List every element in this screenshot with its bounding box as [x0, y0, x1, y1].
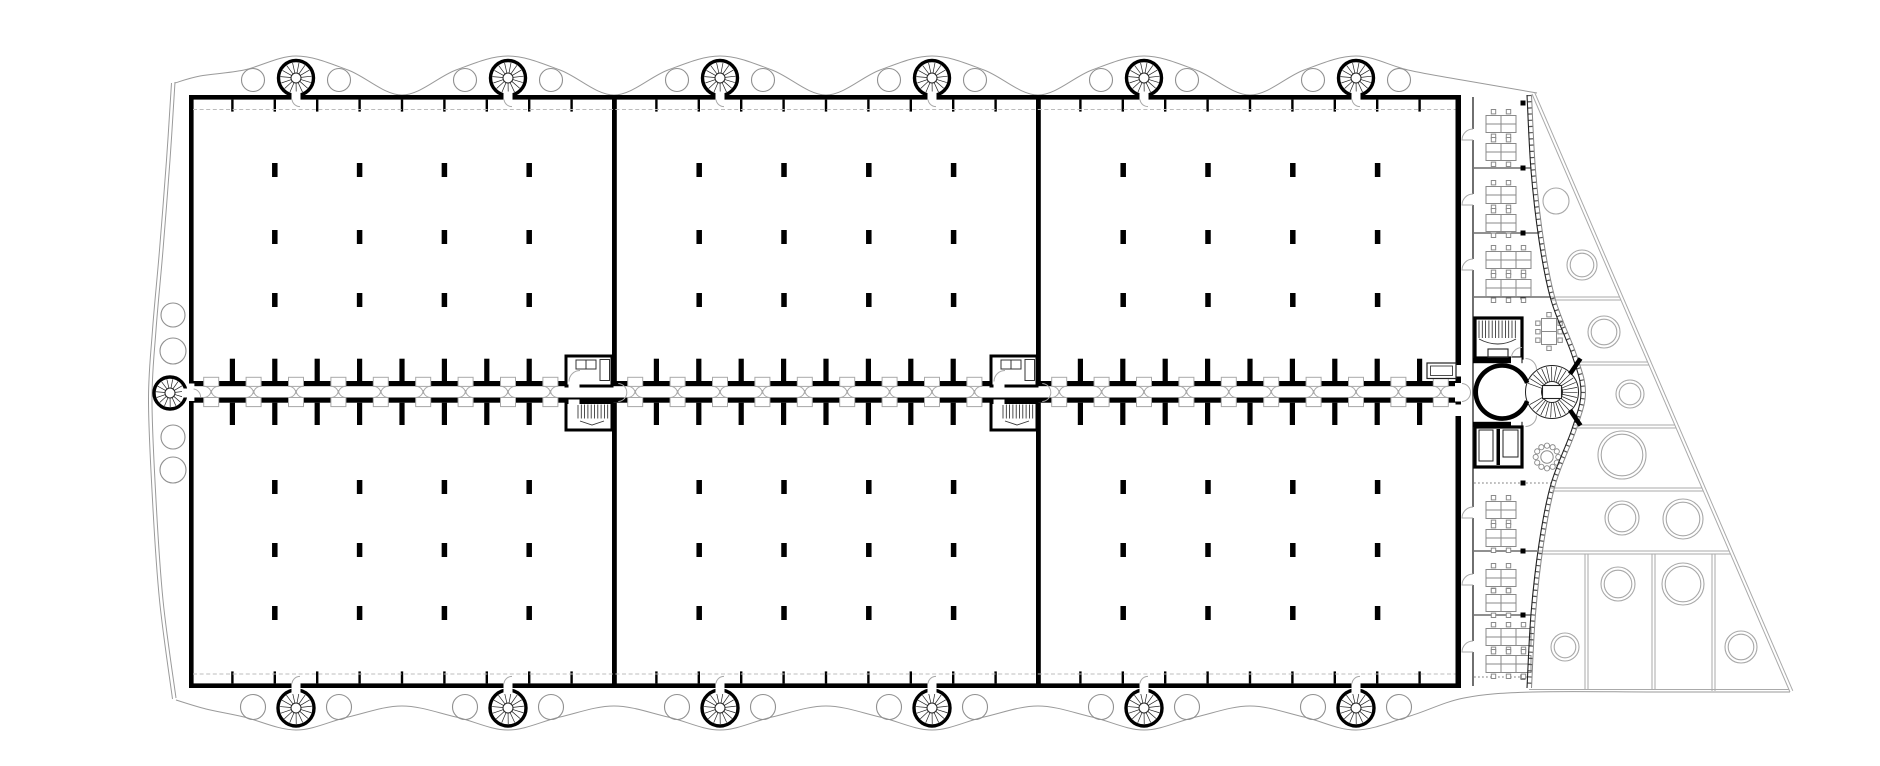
column: [951, 293, 957, 307]
corridor-door: [1306, 377, 1321, 386]
column: [951, 606, 957, 620]
column: [1290, 163, 1296, 177]
corridor-door: [755, 377, 770, 386]
corridor-door: [1349, 377, 1364, 386]
corridor-door: [840, 377, 855, 386]
column: [1120, 163, 1126, 177]
corridor-door: [373, 377, 388, 386]
factory-building: [189, 95, 1581, 688]
corridor-fin-wall: [1417, 403, 1422, 425]
column: [1120, 480, 1126, 494]
facade-column-dot: [1521, 549, 1526, 554]
corridor-door: [543, 377, 558, 386]
corridor-fin-wall: [399, 403, 404, 425]
mullion-tick: [698, 671, 700, 683]
mullion-tick: [316, 671, 318, 683]
mullion-tick: [740, 671, 742, 683]
chair-icon: [1536, 338, 1540, 342]
corridor-fin-wall: [442, 403, 447, 425]
corridor-door: [840, 398, 855, 407]
tower-core: [1139, 703, 1149, 713]
wc-door-gap: [569, 382, 580, 388]
corridor-door: [458, 377, 473, 386]
corridor-door: [1221, 377, 1236, 386]
corridor-door: [925, 377, 940, 386]
column: [696, 480, 702, 494]
chair-icon: [1547, 346, 1551, 350]
column: [1290, 293, 1296, 307]
column: [781, 480, 787, 494]
chair-icon: [1521, 650, 1525, 654]
column: [1290, 230, 1296, 244]
column: [1205, 480, 1211, 494]
stair-room: [566, 403, 612, 431]
column: [1375, 543, 1381, 557]
chair-icon: [1506, 162, 1510, 166]
corridor-door: [1137, 377, 1152, 386]
chair-icon: [1506, 209, 1510, 213]
corridor-fin-wall: [1120, 359, 1125, 381]
column: [1205, 163, 1211, 177]
column: [1205, 293, 1211, 307]
column: [357, 293, 363, 307]
tower-door-gap: [928, 682, 937, 694]
floor-plan-viewport: [0, 0, 1880, 766]
corridor-door: [501, 377, 516, 386]
mullion-tick: [1122, 671, 1124, 683]
tower-core: [291, 73, 301, 83]
column: [1290, 543, 1296, 557]
corridor-door: [289, 398, 304, 407]
tower-door-gap: [716, 92, 725, 102]
office-door-gap: [1472, 259, 1475, 270]
chair-icon: [1491, 233, 1495, 237]
corridor-door: [1391, 398, 1406, 407]
hall-divider-wall: [612, 403, 617, 684]
corridor-door: [713, 398, 728, 407]
north-wall: [189, 95, 1458, 100]
column: [526, 543, 532, 557]
corridor-door: [925, 398, 940, 407]
corridor-door: [967, 377, 982, 386]
mullion-tick: [570, 671, 572, 683]
column: [1290, 480, 1296, 494]
column: [1290, 606, 1296, 620]
chair-icon: [1558, 338, 1562, 342]
facade-column-dot: [1521, 613, 1526, 618]
corridor-door: [755, 398, 770, 407]
corridor-door: [1306, 398, 1321, 407]
mullion-tick: [1334, 671, 1336, 683]
corridor-fin-wall: [781, 403, 786, 425]
office-door-gap: [1472, 574, 1475, 585]
corridor-door: [543, 398, 558, 407]
chair-icon: [1506, 110, 1510, 114]
corridor-fin-wall: [654, 359, 659, 381]
mullion-tick: [443, 671, 445, 683]
column: [357, 543, 363, 557]
corridor-fin-wall: [823, 359, 828, 381]
corridor-fin-wall: [315, 403, 320, 425]
column: [1375, 480, 1381, 494]
mullion-tick: [1291, 671, 1293, 683]
corridor-door: [797, 398, 812, 407]
corridor-fin-wall: [527, 403, 532, 425]
corridor-fin-wall: [696, 403, 701, 425]
column: [781, 293, 787, 307]
chair-icon: [1506, 589, 1510, 593]
chair-icon: [1506, 138, 1510, 142]
corridor-door: [204, 377, 219, 386]
column: [951, 163, 957, 177]
mullion-tick: [1418, 671, 1420, 683]
mullion-tick: [825, 671, 827, 683]
corridor-fin-wall: [442, 359, 447, 381]
facade-column-dot: [1521, 481, 1526, 486]
column: [866, 543, 872, 557]
tower-door-gap: [292, 682, 301, 694]
corridor-door: [331, 398, 346, 407]
column: [951, 543, 957, 557]
column: [866, 480, 872, 494]
chair-icon: [1491, 298, 1495, 302]
chair-icon: [1506, 496, 1510, 500]
south-wall: [189, 683, 1458, 688]
mullion-tick: [401, 671, 403, 683]
corridor-fin-wall: [951, 359, 956, 381]
tower-core: [927, 73, 937, 83]
facade-column-dot: [1521, 166, 1526, 171]
column: [696, 606, 702, 620]
chair-icon: [1491, 209, 1495, 213]
corridor-door: [204, 398, 219, 407]
corridor-door: [246, 377, 261, 386]
chair-icon: [1506, 564, 1510, 568]
corridor-fin-wall: [1375, 403, 1380, 425]
corridor-fin-wall: [866, 403, 871, 425]
chair-icon: [1491, 162, 1495, 166]
tower-door-gap: [1140, 92, 1149, 102]
corridor-fin-wall: [1247, 403, 1252, 425]
corridor-door: [882, 377, 897, 386]
corridor-door: [882, 398, 897, 407]
corridor-door: [246, 398, 261, 407]
corridor-door: [289, 377, 304, 386]
corridor-door: [1391, 377, 1406, 386]
mullion-tick: [613, 100, 615, 112]
tower-door-gap: [1352, 682, 1361, 694]
chair-icon: [1521, 674, 1525, 678]
hall-divider-wall: [1036, 403, 1041, 684]
column: [1120, 543, 1126, 557]
corridor-door: [331, 377, 346, 386]
column: [1205, 230, 1211, 244]
floor-plan-canvas: [0, 0, 1880, 766]
corridor-fin-wall: [1375, 359, 1380, 381]
mullion-tick: [316, 100, 318, 112]
chair-icon: [1506, 674, 1510, 678]
chair-icon: [1506, 298, 1510, 302]
corridor-fin-wall: [399, 359, 404, 381]
column: [696, 293, 702, 307]
column: [866, 230, 872, 244]
tower-door-gap: [928, 92, 937, 102]
column: [696, 543, 702, 557]
mullion-tick: [358, 671, 360, 683]
chair-icon: [1521, 298, 1525, 302]
tower-door-gap: [292, 92, 301, 102]
column: [866, 293, 872, 307]
column: [442, 480, 448, 494]
corridor-fin-wall: [823, 403, 828, 425]
corridor-fin-wall: [230, 359, 235, 381]
desk-cluster: [1486, 274, 1531, 303]
corridor-door: [1094, 377, 1109, 386]
stair-door-gap: [569, 400, 580, 406]
tower-core: [715, 73, 725, 83]
column: [357, 480, 363, 494]
mullion-tick: [1037, 671, 1039, 683]
tower-door-gap: [1352, 92, 1361, 102]
corridor-fin-wall: [1163, 403, 1168, 425]
column: [272, 606, 278, 620]
corridor-door: [967, 398, 982, 407]
stair-door-gap: [994, 400, 1005, 406]
corridor-door: [628, 377, 643, 386]
chair-icon: [1506, 613, 1510, 617]
tower-core: [503, 73, 513, 83]
chair-icon: [1536, 321, 1540, 325]
lobby-door-gap: [1511, 358, 1522, 364]
chair-icon: [1491, 650, 1495, 654]
corridor-door: [1264, 377, 1279, 386]
column: [272, 230, 278, 244]
column: [526, 163, 532, 177]
chair-icon: [1506, 524, 1510, 528]
column: [442, 543, 448, 557]
wc-door-gap: [994, 382, 1005, 388]
corridor-fin-wall: [1205, 403, 1210, 425]
tower-door-gap: [182, 389, 195, 398]
column: [442, 293, 448, 307]
corridor-door: [1349, 398, 1364, 407]
corridor-fin-wall: [781, 359, 786, 381]
mullion-tick: [231, 671, 233, 683]
corridor-fin-wall: [484, 403, 489, 425]
facade-column-dot: [1521, 231, 1526, 236]
corridor-fin-wall: [1247, 359, 1252, 381]
corridor-fin-wall: [696, 359, 701, 381]
corridor-fin-wall: [1163, 359, 1168, 381]
corridor-fin-wall: [866, 359, 871, 381]
mullion-tick: [1249, 671, 1251, 683]
corridor-fin-wall: [739, 403, 744, 425]
column: [1120, 293, 1126, 307]
tower-core: [1351, 703, 1361, 713]
corridor-door: [1137, 398, 1152, 407]
chair-icon: [1506, 650, 1510, 654]
corridor-fin-wall: [230, 403, 235, 425]
tower-door-gap: [504, 92, 513, 102]
corridor-door: [416, 398, 431, 407]
mullion-tick: [910, 100, 912, 112]
corridor-east-opening: [1455, 383, 1462, 402]
column: [442, 606, 448, 620]
corridor-door: [1052, 377, 1067, 386]
corridor-fin-wall: [272, 359, 277, 381]
corridor-fin-wall: [357, 403, 362, 425]
stair-room: [991, 403, 1037, 431]
corridor-fin-wall: [739, 359, 744, 381]
column: [1375, 163, 1381, 177]
corridor-fin-wall: [654, 403, 659, 425]
tower-door-gap: [1140, 682, 1149, 694]
mullion-tick: [867, 671, 869, 683]
corridor-fin-wall: [484, 359, 489, 381]
column: [526, 293, 532, 307]
desk-cluster: [1486, 246, 1531, 275]
corridor-door: [628, 398, 643, 407]
chair-icon: [1521, 274, 1525, 278]
corridor-fin-wall: [527, 359, 532, 381]
mullion-tick: [528, 671, 530, 683]
corridor-door: [670, 398, 685, 407]
office-door-gap: [1472, 129, 1475, 140]
corridor-door: [1433, 398, 1448, 407]
column: [866, 163, 872, 177]
corridor-door: [1179, 398, 1194, 407]
tower-core: [291, 703, 301, 713]
corridor-fin-wall: [315, 359, 320, 381]
mullion-tick: [910, 671, 912, 683]
column: [696, 163, 702, 177]
corridor-door: [458, 398, 473, 407]
column: [1375, 606, 1381, 620]
facade-column-dot: [1521, 101, 1526, 106]
chair-icon: [1491, 548, 1495, 552]
corridor-fin-wall: [272, 403, 277, 425]
column: [951, 480, 957, 494]
mullion-tick: [486, 671, 488, 683]
chair-icon: [1491, 524, 1495, 528]
column: [1205, 606, 1211, 620]
column: [781, 230, 787, 244]
tower-core: [927, 703, 937, 713]
corridor-door: [670, 377, 685, 386]
corridor-door: [1179, 377, 1194, 386]
mullion-tick: [994, 671, 996, 683]
corridor-door: [416, 377, 431, 386]
desk-cluster: [1486, 623, 1531, 652]
column: [442, 230, 448, 244]
office-door-gap: [1472, 507, 1475, 518]
column: [781, 606, 787, 620]
chair-icon: [1491, 138, 1495, 142]
tower-door-gap: [504, 682, 513, 694]
mullion-tick: [613, 671, 615, 683]
corridor-fin-wall: [1290, 403, 1295, 425]
column: [1375, 293, 1381, 307]
mullion-tick: [782, 671, 784, 683]
tower-core: [503, 703, 513, 713]
wc-divider-wall: [1497, 429, 1501, 465]
corridor-door: [501, 398, 516, 407]
corridor-door: [1264, 398, 1279, 407]
column: [272, 543, 278, 557]
chair-icon: [1521, 246, 1525, 250]
corridor-door: [1094, 398, 1109, 407]
column: [272, 163, 278, 177]
chair-icon: [1491, 589, 1495, 593]
chair-icon: [1506, 233, 1510, 237]
mullion-tick: [655, 671, 657, 683]
desk-cluster: [1486, 650, 1531, 679]
corridor-fin-wall: [908, 359, 913, 381]
chair-icon: [1491, 674, 1495, 678]
office-door-gap: [1472, 194, 1475, 205]
corridor-fin-wall: [1078, 403, 1083, 425]
column: [526, 230, 532, 244]
tower-core: [165, 388, 175, 398]
mullion-tick: [1376, 671, 1378, 683]
corridor-fin-wall: [1078, 359, 1083, 381]
chair-icon: [1506, 548, 1510, 552]
hall-divider-wall: [1036, 99, 1041, 381]
hall-door-gap: [1455, 405, 1462, 417]
chair-icon: [1491, 623, 1495, 627]
chair-icon: [1491, 496, 1495, 500]
corridor-door: [1221, 398, 1236, 407]
corridor-fin-wall: [1417, 359, 1422, 381]
chair-icon: [1547, 313, 1551, 317]
building-floor: [189, 95, 1581, 688]
column: [526, 480, 532, 494]
column: [357, 230, 363, 244]
column: [357, 163, 363, 177]
chair-icon: [1536, 330, 1540, 334]
corridor-fin-wall: [1205, 359, 1210, 381]
tower-core: [1351, 73, 1361, 83]
corridor-door: [797, 377, 812, 386]
column: [1120, 606, 1126, 620]
column: [696, 230, 702, 244]
tower-core: [1139, 73, 1149, 83]
corridor-fin-wall: [951, 403, 956, 425]
column: [1120, 230, 1126, 244]
chair-icon: [1506, 246, 1510, 250]
mullion-tick: [1206, 671, 1208, 683]
corridor-fin-wall: [1120, 403, 1125, 425]
corridor-fin-wall: [357, 359, 362, 381]
chair-icon: [1491, 110, 1495, 114]
column: [272, 480, 278, 494]
column: [357, 606, 363, 620]
chair-icon: [1491, 613, 1495, 617]
column: [442, 163, 448, 177]
office-door-gap: [1472, 641, 1475, 652]
lift-cab: [1543, 386, 1562, 399]
corridor-fin-wall: [1332, 359, 1337, 381]
chair-icon: [1521, 623, 1525, 627]
hall-divider-wall: [612, 99, 617, 381]
mullion-tick: [1079, 671, 1081, 683]
mullion-tick: [952, 671, 954, 683]
reception-booth: [1427, 363, 1456, 379]
column: [1375, 230, 1381, 244]
chair-icon: [1506, 181, 1510, 185]
column: [781, 543, 787, 557]
column: [272, 293, 278, 307]
